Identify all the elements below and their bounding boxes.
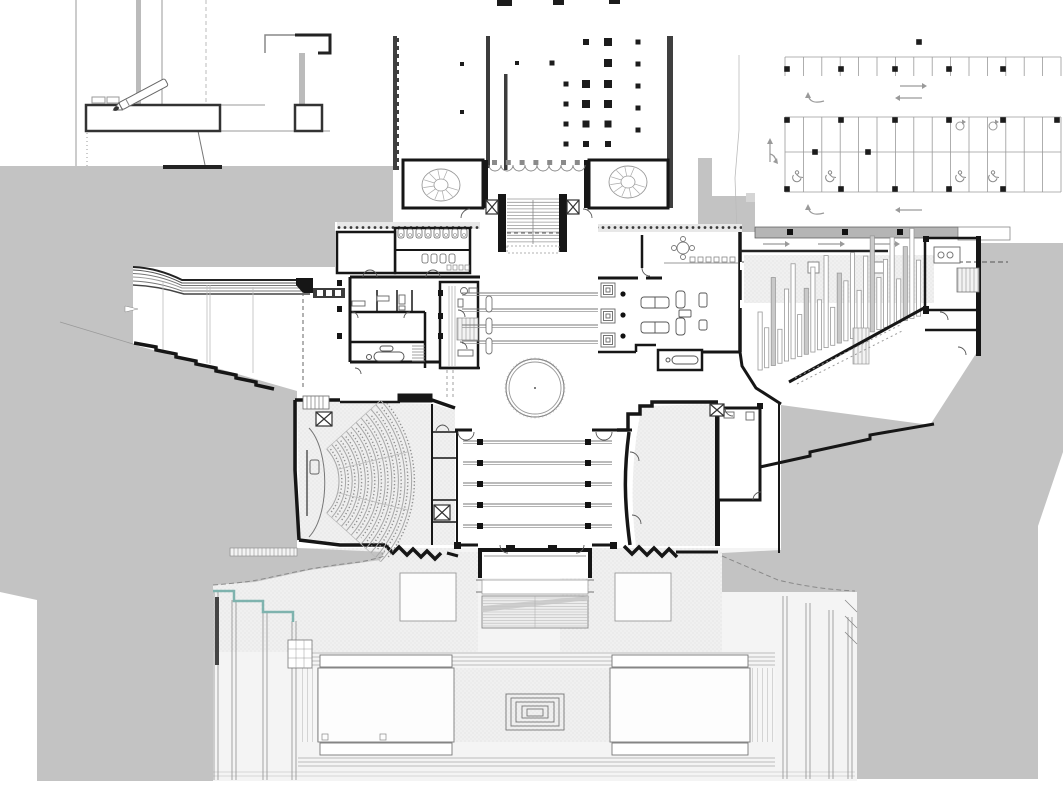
wheelchair-icon [793, 171, 999, 182]
grand-stair [486, 194, 579, 253]
garden-panel [615, 573, 671, 621]
site-plan-drawing [0, 0, 1063, 797]
parking-stall-lines [785, 57, 1061, 192]
garden-kiosk [288, 640, 312, 668]
parking-columns [784, 39, 1060, 192]
site-fragment-existing-context [76, 0, 330, 169]
reflecting-pool [610, 668, 750, 742]
skylight-squares [601, 283, 615, 347]
context-building [86, 105, 220, 131]
garden-pavilion [476, 545, 594, 628]
cafe-chairs [690, 257, 735, 262]
arcade-colonnade [489, 160, 585, 171]
floor-plan-page [0, 0, 1063, 797]
existing-museum-hall [393, 0, 673, 253]
reception-desk [367, 346, 405, 361]
lounge-columns [620, 291, 625, 338]
reflecting-pool [318, 668, 454, 742]
stage-stair [303, 396, 329, 409]
elevator-x-icon [710, 404, 724, 416]
garden-panel [400, 573, 456, 621]
turnaround-arrow-icon [956, 120, 999, 131]
east-stair-room [589, 160, 668, 208]
parking-lot [735, 39, 1061, 247]
hall-west-wall [393, 36, 399, 170]
special-exhibition-room [617, 402, 779, 557]
hall-top-marks [497, 0, 620, 6]
traffic-arrow-icons [763, 83, 927, 247]
lounge-furniture [641, 291, 707, 335]
entry-gallery [462, 293, 612, 529]
rotunda [505, 358, 566, 419]
auditorium [295, 394, 458, 562]
poche-top-left [0, 166, 393, 267]
